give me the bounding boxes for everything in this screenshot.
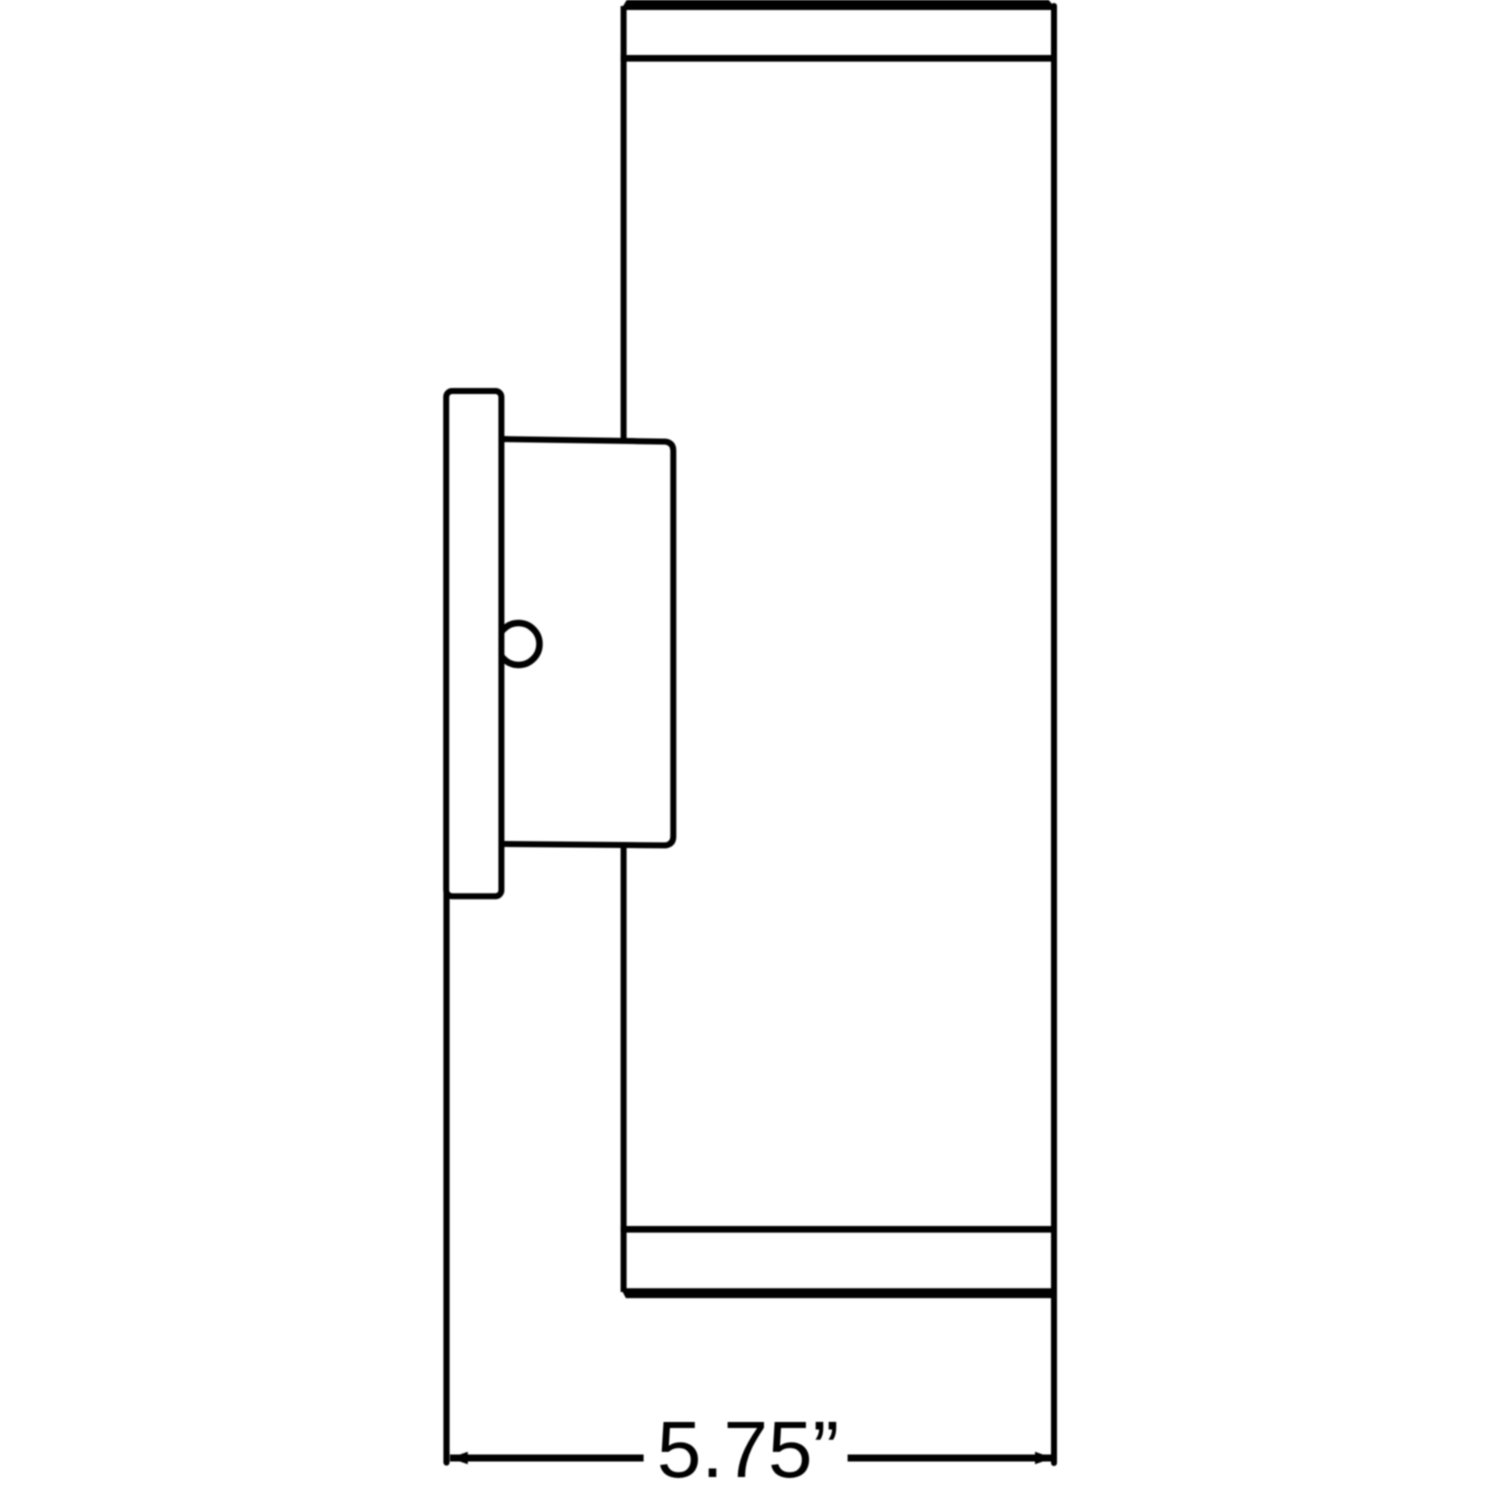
svg-text:5.75”: 5.75” [657, 1405, 839, 1494]
